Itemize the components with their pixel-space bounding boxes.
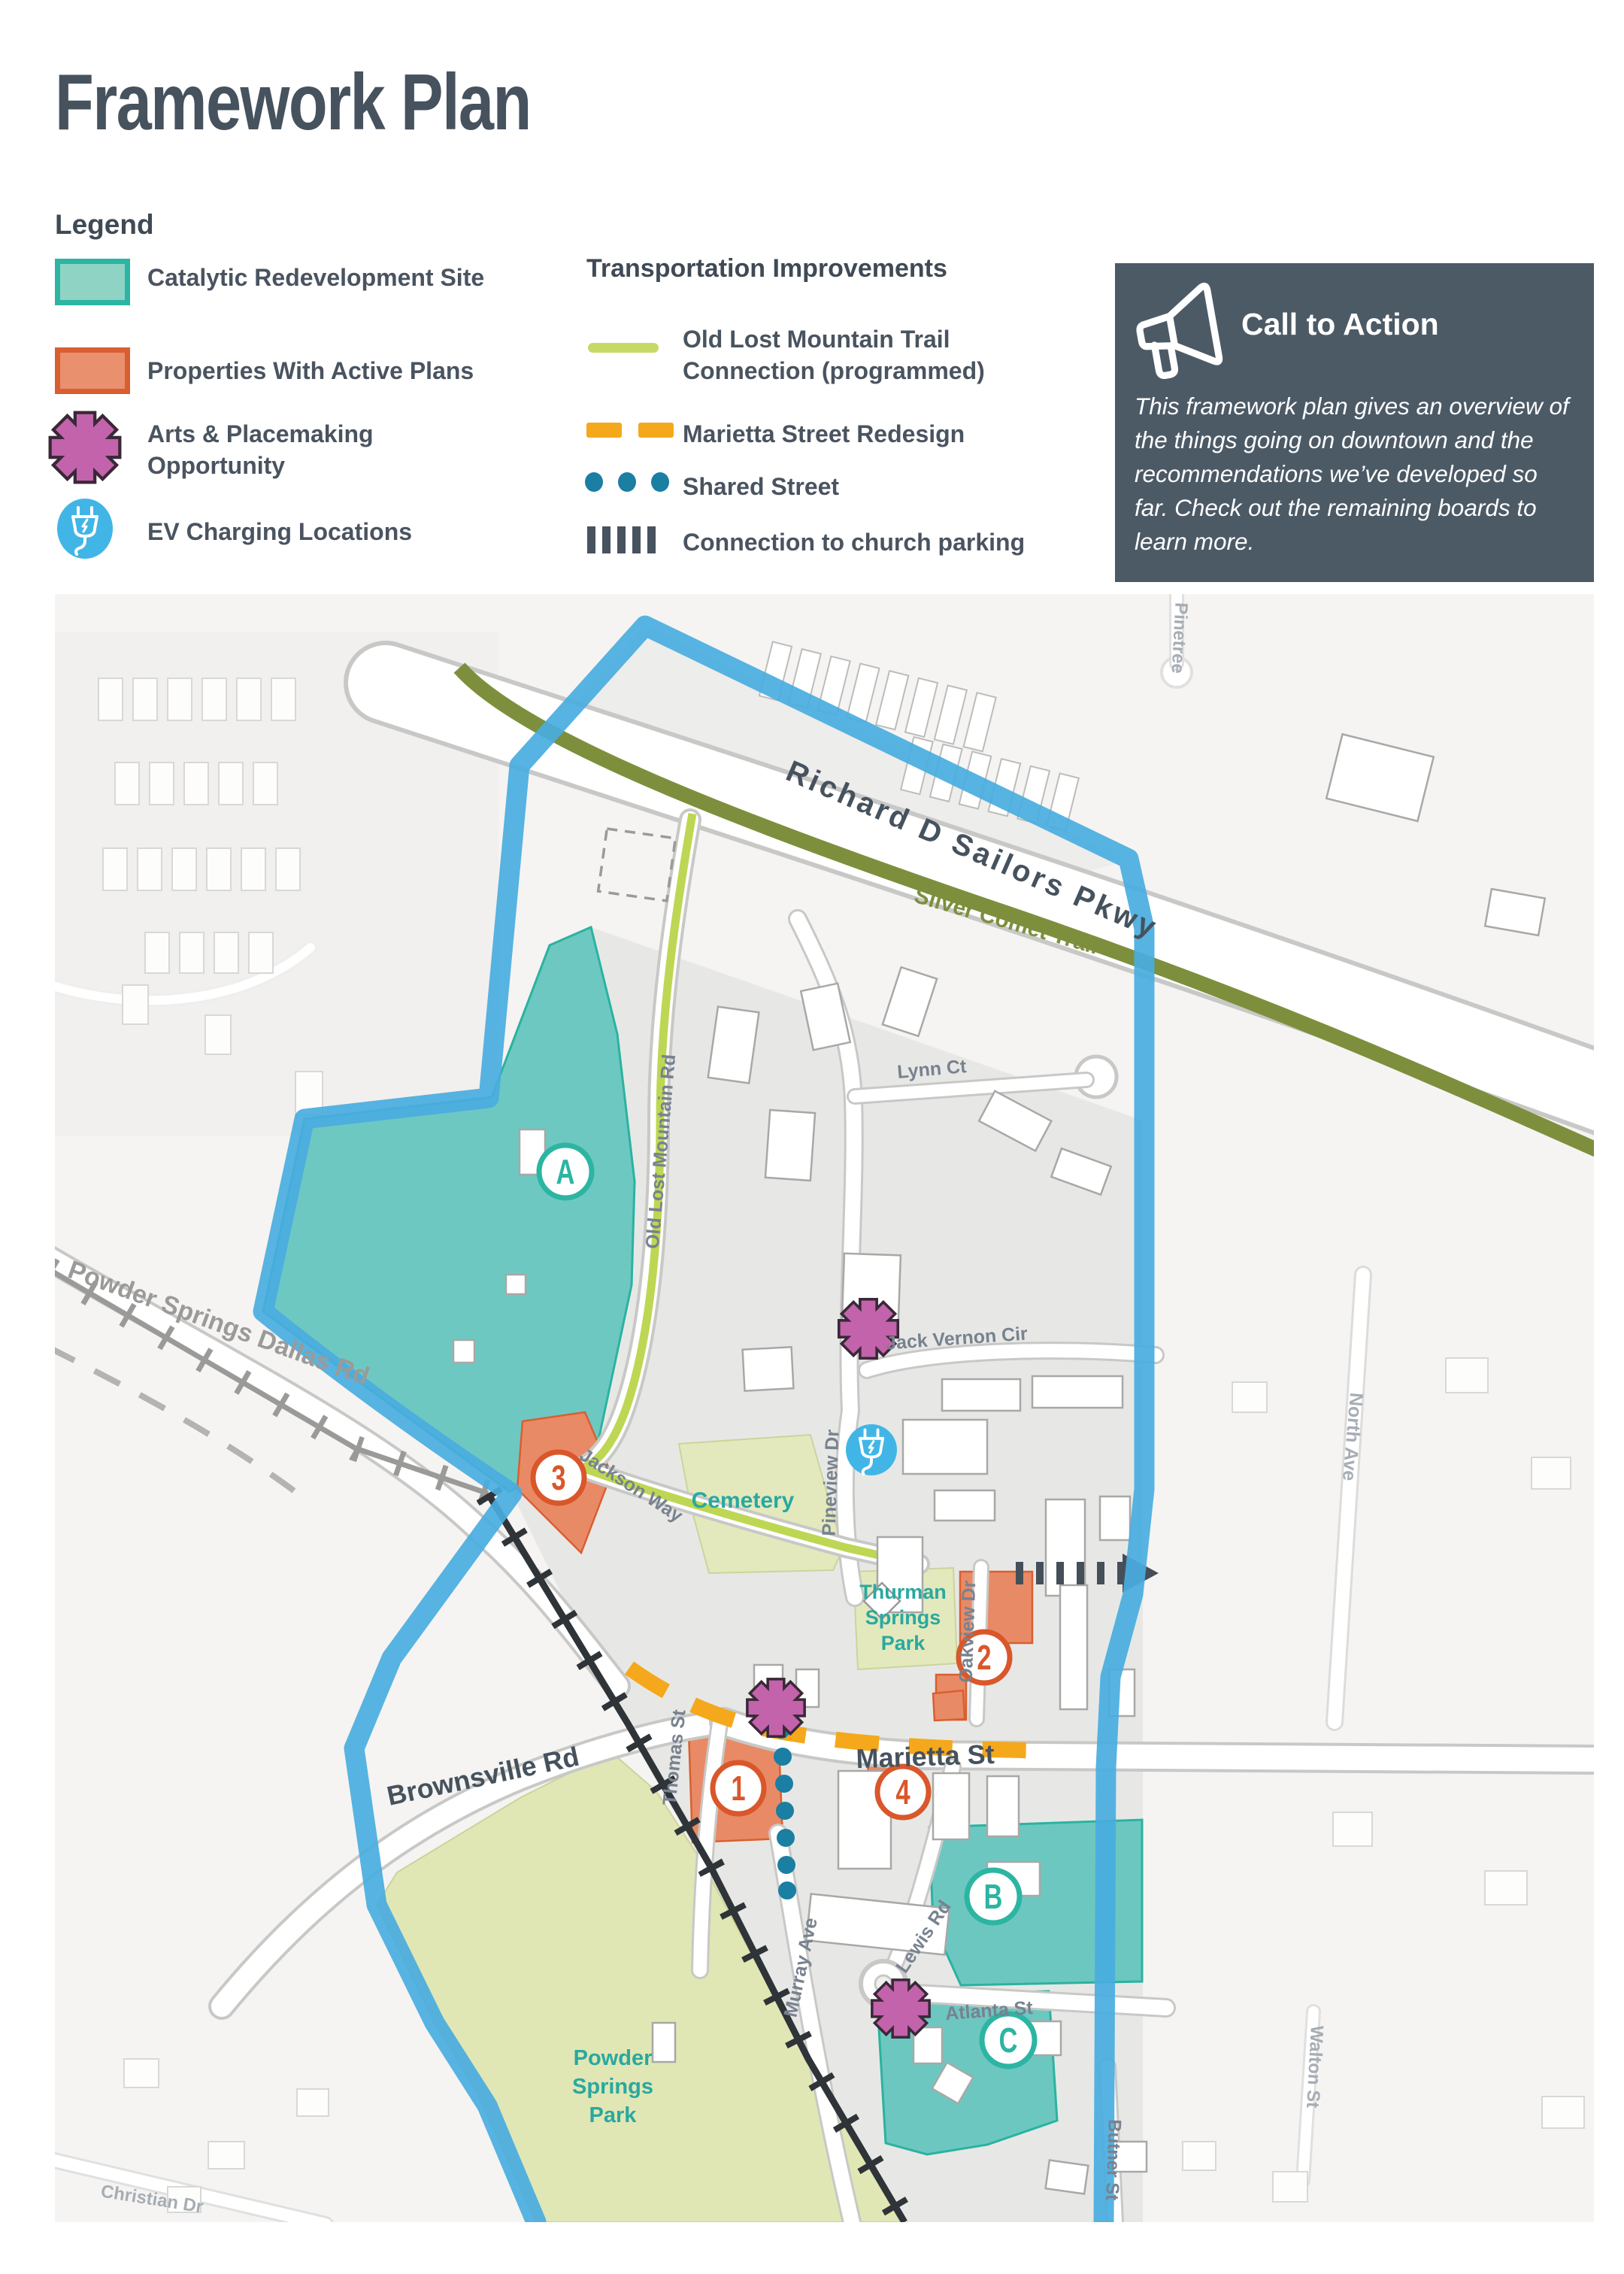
call-to-action-panel: Call to Action This framework plan gives… <box>1115 263 1594 582</box>
label-thurman-line3: Park <box>881 1632 926 1654</box>
site-marker-a: A <box>539 1145 592 1198</box>
map-canvas: A B C 1 2 3 <box>55 594 1594 2222</box>
transportation-item-trail-label: Old Lost Mountain Trail Connection (prog… <box>683 323 1074 387</box>
legend-item-arts-label: Arts & Placemaking Opportunity <box>147 418 508 481</box>
arts-asterisk-icon <box>44 406 126 489</box>
ev-charging-icon <box>54 496 116 561</box>
arts-marker-atlanta <box>874 1981 929 2036</box>
parcel-marker-1: 1 <box>713 1763 764 1814</box>
label-walton-st: Walton St <box>1302 2025 1327 2109</box>
parcel-marker-3-label: 3 <box>551 1458 565 1497</box>
parcel-marker-4-label: 4 <box>895 1772 910 1812</box>
label-thurman-line1: Thurman <box>859 1581 947 1603</box>
trail-connection-swatch <box>588 343 659 353</box>
label-pinetree: Pinetree <box>1168 602 1192 674</box>
parcel-marker-4: 4 <box>877 1766 929 1818</box>
legend-item-ev-label: EV Charging Locations <box>147 516 508 547</box>
transportation-item-marietta-label: Marietta Street Redesign <box>683 418 1074 450</box>
active-plans-swatch <box>55 347 130 394</box>
parcel-small-area <box>933 1690 965 1721</box>
ev-charging-map-icon <box>846 1424 897 1475</box>
megaphone-icon <box>1129 281 1228 381</box>
label-cemetery: Cemetery <box>692 1488 795 1513</box>
transportation-heading: Transportation Improvements <box>586 254 947 283</box>
framework-plan-map: A B C 1 2 3 <box>55 594 1594 2222</box>
label-psp-line2: Springs <box>572 2075 653 2099</box>
site-marker-c-label: C <box>999 2021 1018 2060</box>
legend-item-active-plans-label: Properties With Active Plans <box>147 355 508 387</box>
label-oakview-dr: Oakview Dr <box>956 1580 980 1683</box>
catalytic-site-swatch <box>55 259 130 305</box>
label-thurman-line2: Springs <box>865 1606 941 1629</box>
label-marietta-st: Marietta St <box>856 1739 995 1774</box>
legend-heading: Legend <box>55 209 154 241</box>
parcel-marker-1-label: 1 <box>731 1769 745 1808</box>
shared-street-swatch <box>585 472 669 492</box>
call-to-action-body: This framework plan gives an overview of… <box>1135 390 1575 559</box>
church-parking-swatch <box>587 526 656 553</box>
site-marker-b: B <box>967 1870 1020 1923</box>
label-pineview-dr: Pineview Dr <box>819 1429 844 1536</box>
transportation-item-church-label: Connection to church parking <box>683 526 1074 558</box>
call-to-action-heading: Call to Action <box>1241 307 1439 342</box>
marietta-redesign-swatch <box>586 423 674 438</box>
arts-marker-marietta <box>749 1681 804 1736</box>
label-butner-st: Butner St <box>1101 2119 1125 2201</box>
site-marker-a-label: A <box>556 1152 575 1191</box>
transportation-item-shared-label: Shared Street <box>683 471 1074 502</box>
label-psp-line1: Powder <box>574 2046 653 2070</box>
site-marker-b-label: B <box>984 1877 1003 1916</box>
label-psp-line3: Park <box>589 2103 638 2127</box>
legend-item-catalytic-label: Catalytic Redevelopment Site <box>147 262 508 293</box>
site-marker-c: C <box>982 2014 1035 2066</box>
page-title: Framework Plan <box>55 57 531 148</box>
framework-plan-board: Framework Plan Legend Catalytic Redevelo… <box>0 0 1624 2274</box>
parcel-marker-2-label: 2 <box>977 1638 991 1677</box>
